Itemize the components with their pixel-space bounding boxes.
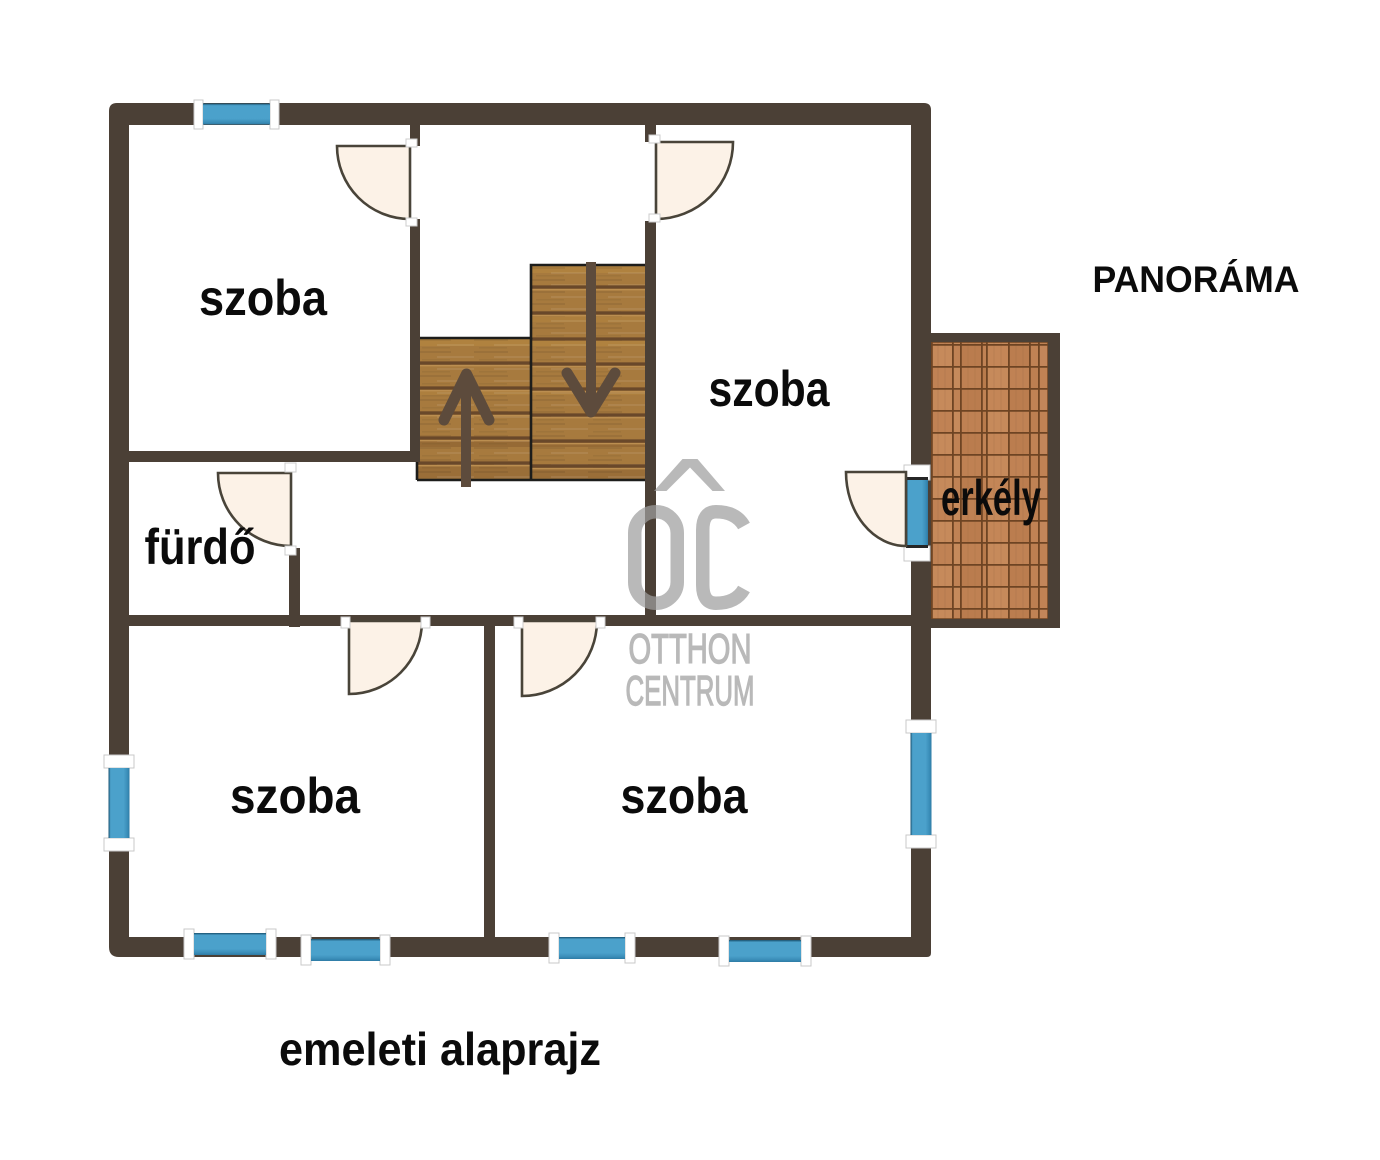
svg-text:szoba: szoba: [230, 768, 361, 824]
svg-text:CENTRUM: CENTRUM: [626, 667, 755, 714]
svg-text:szoba: szoba: [199, 270, 328, 326]
svg-text:erkély: erkély: [941, 470, 1041, 526]
svg-text:szoba: szoba: [709, 361, 831, 417]
svg-text:fürdő: fürdő: [145, 519, 256, 575]
svg-text:szoba: szoba: [621, 768, 749, 824]
svg-text:PANORÁMA: PANORÁMA: [1093, 259, 1300, 300]
svg-text:emeleti alaprajz: emeleti alaprajz: [279, 1023, 601, 1075]
svg-text:OTTHON: OTTHON: [629, 625, 752, 672]
